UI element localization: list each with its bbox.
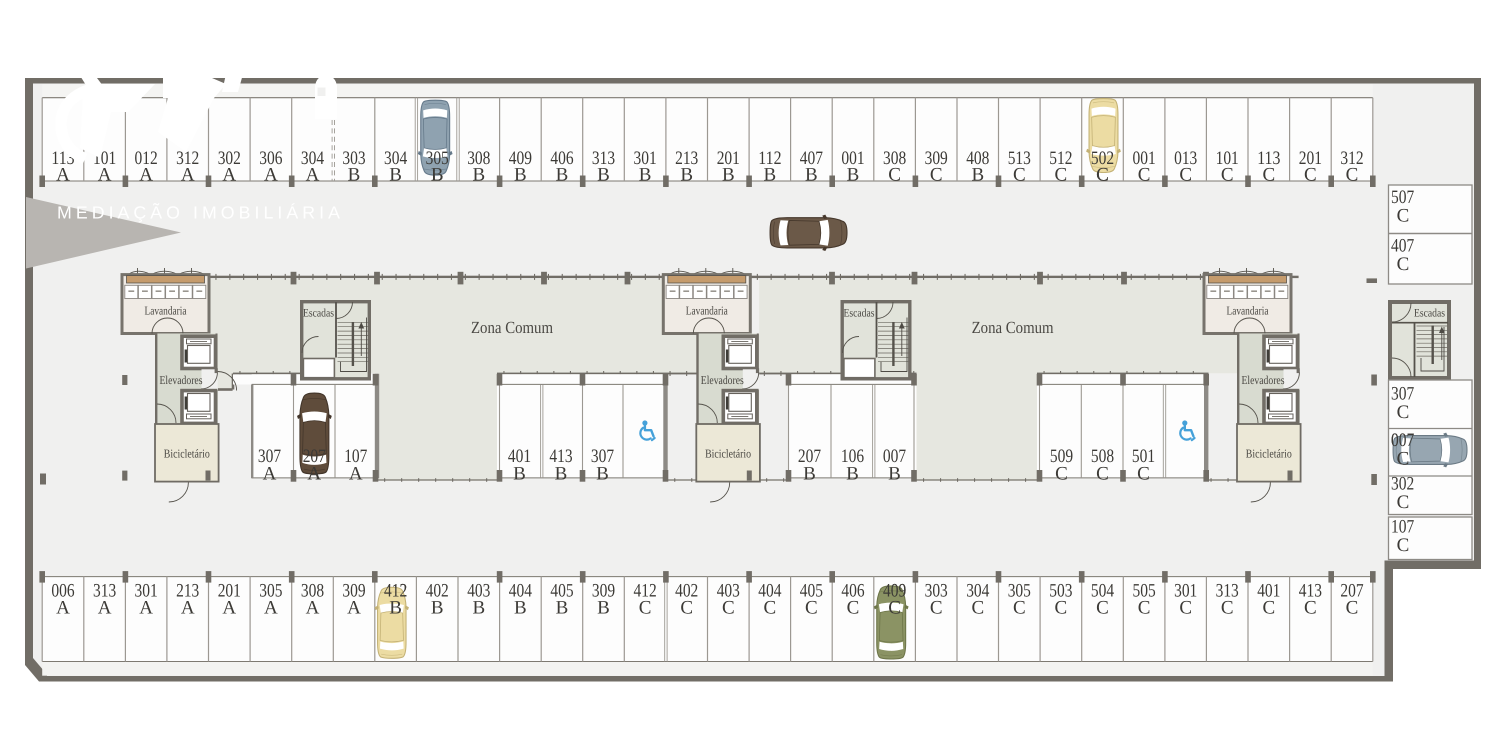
svg-text:B: B <box>888 463 901 484</box>
svg-text:C: C <box>805 598 818 619</box>
svg-text:C: C <box>764 598 777 619</box>
svg-text:C: C <box>1013 165 1026 186</box>
svg-text:B: B <box>431 598 444 619</box>
svg-text:B: B <box>639 165 652 186</box>
svg-text:C: C <box>1096 598 1109 619</box>
svg-text:A: A <box>264 598 278 619</box>
svg-text:C: C <box>1221 598 1234 619</box>
svg-text:C: C <box>1304 598 1317 619</box>
svg-text:B: B <box>513 463 526 484</box>
svg-text:A: A <box>306 165 320 186</box>
svg-text:Zona Comum: Zona Comum <box>471 318 553 337</box>
svg-text:Lavandaria: Lavandaria <box>1227 304 1270 318</box>
svg-text:A: A <box>222 598 236 619</box>
svg-text:C: C <box>1096 463 1109 484</box>
svg-text:C: C <box>1346 165 1359 186</box>
svg-text:C: C <box>1397 402 1410 423</box>
svg-text:C: C <box>1346 598 1359 619</box>
svg-text:C: C <box>888 165 901 186</box>
svg-text:B: B <box>556 598 569 619</box>
svg-text:A: A <box>307 463 321 484</box>
svg-text:C: C <box>639 598 652 619</box>
svg-text:C: C <box>930 598 943 619</box>
svg-text:Escadas: Escadas <box>844 308 875 320</box>
svg-text:Lavandaria: Lavandaria <box>145 304 188 318</box>
svg-text:C: C <box>1262 165 1275 186</box>
svg-text:B: B <box>389 598 402 619</box>
svg-text:C: C <box>680 598 693 619</box>
svg-text:C: C <box>1397 254 1410 275</box>
svg-text:B: B <box>555 463 568 484</box>
svg-text:A: A <box>349 463 363 484</box>
svg-text:C: C <box>888 598 901 619</box>
svg-text:B: B <box>514 598 527 619</box>
svg-text:Zona Comum: Zona Comum <box>972 318 1054 337</box>
svg-text:A: A <box>347 598 361 619</box>
svg-text:C: C <box>847 598 860 619</box>
svg-text:A: A <box>98 598 112 619</box>
svg-text:A: A <box>263 463 277 484</box>
svg-text:B: B <box>971 165 984 186</box>
svg-text:C: C <box>1397 206 1410 227</box>
svg-text:C: C <box>1055 165 1068 186</box>
svg-text:A: A <box>222 165 236 186</box>
svg-text:B: B <box>847 165 860 186</box>
svg-text:A: A <box>181 165 195 186</box>
svg-text:MEDIAÇÃO IMOBILIÁRIA: MEDIAÇÃO IMOBILIÁRIA <box>57 203 344 223</box>
svg-text:A: A <box>56 165 70 186</box>
svg-text:B: B <box>803 463 816 484</box>
svg-text:B: B <box>389 165 402 186</box>
svg-text:C: C <box>1096 165 1109 186</box>
svg-text:Elevadores: Elevadores <box>1242 373 1285 387</box>
svg-text:B: B <box>680 165 693 186</box>
svg-text:C: C <box>1013 598 1026 619</box>
svg-text:B: B <box>514 165 527 186</box>
svg-text:C: C <box>1179 598 1192 619</box>
svg-text:B: B <box>722 165 735 186</box>
svg-text:C: C <box>1397 535 1410 556</box>
svg-text:B: B <box>846 463 859 484</box>
svg-text:Elevadores: Elevadores <box>701 373 744 387</box>
svg-text:B: B <box>431 165 444 186</box>
svg-text:Bicicletário: Bicicletário <box>705 447 751 461</box>
svg-text:C: C <box>1055 598 1068 619</box>
svg-text:B: B <box>805 165 818 186</box>
svg-text:C: C <box>1397 492 1410 513</box>
svg-text:C: C <box>1137 463 1150 484</box>
svg-text:A: A <box>139 165 153 186</box>
svg-text:A: A <box>139 598 153 619</box>
svg-text:B: B <box>472 598 485 619</box>
svg-text:A: A <box>181 598 195 619</box>
svg-text:C: C <box>1262 598 1275 619</box>
svg-text:A: A <box>306 598 320 619</box>
svg-text:B: B <box>597 598 610 619</box>
svg-text:C: C <box>1055 463 1068 484</box>
svg-text:B: B <box>596 463 609 484</box>
svg-text:C: C <box>1138 598 1151 619</box>
svg-text:B: B <box>764 165 777 186</box>
svg-text:C: C <box>971 598 984 619</box>
svg-text:C: C <box>1221 165 1234 186</box>
svg-text:Bicicletário: Bicicletário <box>164 447 210 461</box>
svg-text:C: C <box>930 165 943 186</box>
svg-text:C: C <box>1304 165 1317 186</box>
svg-text:B: B <box>597 165 610 186</box>
svg-text:Escadas: Escadas <box>303 308 334 320</box>
svg-text:Lavandaria: Lavandaria <box>686 304 729 318</box>
svg-text:Bicicletário: Bicicletário <box>1246 447 1292 461</box>
svg-text:Escadas: Escadas <box>1414 308 1445 320</box>
svg-text:C: C <box>1397 449 1410 470</box>
svg-text:C: C <box>1179 165 1192 186</box>
svg-text:C: C <box>722 598 735 619</box>
svg-text:B: B <box>348 165 361 186</box>
svg-text:A: A <box>264 165 278 186</box>
svg-text:A: A <box>98 165 112 186</box>
svg-text:B: B <box>472 165 485 186</box>
svg-text:B: B <box>556 165 569 186</box>
svg-text:C: C <box>1138 165 1151 186</box>
svg-text:A: A <box>56 598 70 619</box>
svg-text:Elevadores: Elevadores <box>160 373 203 387</box>
